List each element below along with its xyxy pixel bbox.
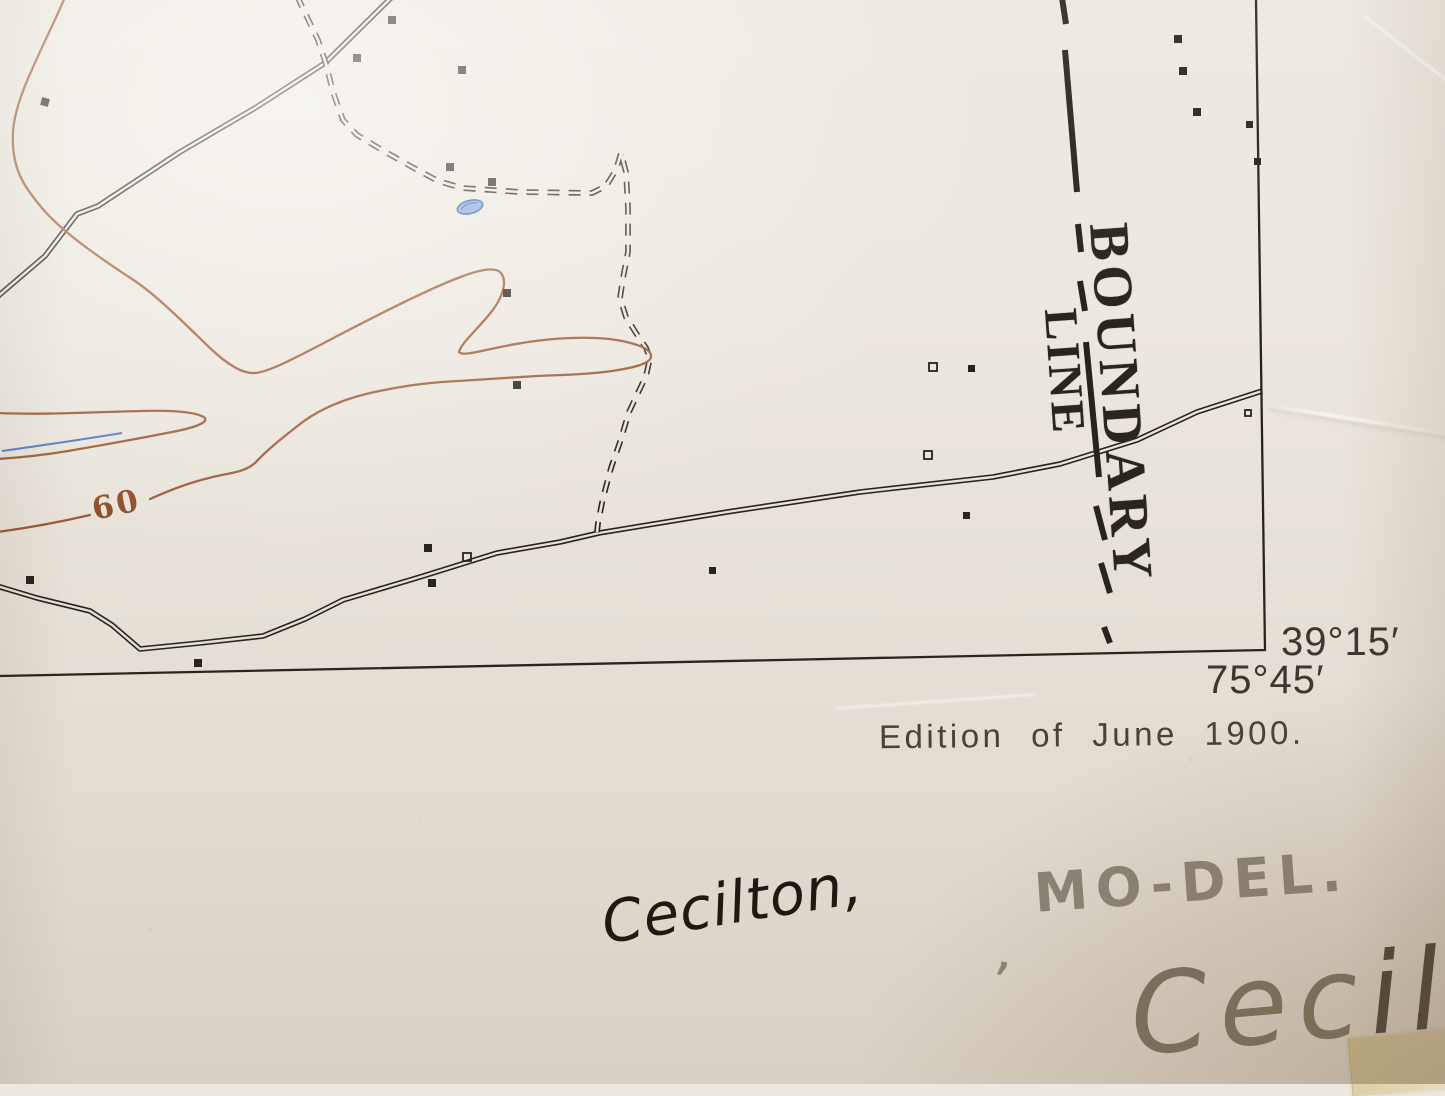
pond-icon — [456, 198, 484, 217]
contour-line-loop — [0, 411, 205, 459]
edition-note: Edition of June 1900. — [879, 714, 1305, 756]
partial-name-dark: il — [1363, 924, 1445, 1061]
trail-dashed — [297, 0, 650, 532]
contour-lines — [0, 0, 651, 532]
stream-line — [2, 433, 122, 451]
partial-name-light: Cec — [1125, 931, 1374, 1081]
corner-longitude-label: 75°45′ — [1206, 658, 1324, 703]
map-photo: BOUNDARY LINE 60 39°15′ 75°45′ Edition o… — [0, 0, 1445, 1084]
handwritten-partial-name: Cecil — [1125, 924, 1445, 1081]
contour-line-main — [0, 0, 651, 532]
road-upper-left — [0, 0, 393, 297]
pencil-dot — [1418, 1013, 1423, 1018]
